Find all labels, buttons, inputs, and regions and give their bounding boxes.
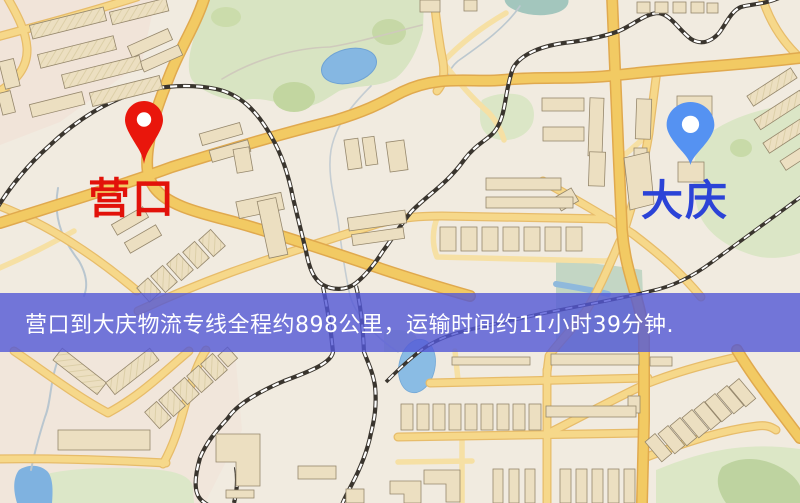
origin-label: 营口 [88,178,176,220]
route-info-banner: 营口到大庆物流专线全程约898公里，运输时间约11小时39分钟. [0,293,800,352]
destination-label: 大庆 [641,180,729,222]
pond-southwest [14,466,52,503]
map: 营口 大庆 营口到大庆物流专线全程约898公里，运输时间约11小时39分钟. [0,0,800,503]
route-info-text: 营口到大庆物流专线全程约898公里，运输时间约11小时39分钟. [0,307,674,339]
map-canvas [0,0,800,503]
